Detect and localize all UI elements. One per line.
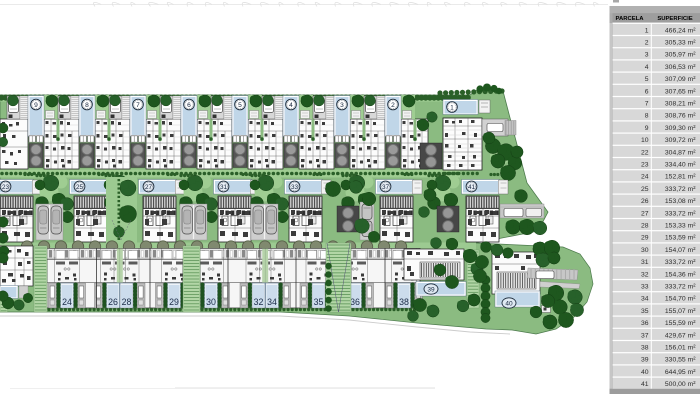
svg-text:27: 27 [145, 184, 153, 191]
svg-text:3: 3 [340, 102, 344, 109]
svg-text:153,59 m²: 153,59 m² [665, 235, 696, 242]
svg-text:35: 35 [314, 297, 324, 307]
svg-text:34: 34 [267, 297, 277, 307]
svg-text:156,01 m²: 156,01 m² [665, 345, 696, 352]
svg-text:34: 34 [641, 296, 649, 303]
svg-text:308,76 m²: 308,76 m² [665, 113, 696, 120]
svg-text:9: 9 [645, 125, 649, 132]
svg-text:32: 32 [254, 297, 264, 307]
svg-text:26: 26 [641, 198, 649, 205]
svg-text:5: 5 [238, 102, 242, 109]
svg-text:31: 31 [220, 184, 228, 191]
svg-text:32: 32 [641, 271, 649, 278]
svg-text:154,36 m²: 154,36 m² [665, 271, 696, 278]
svg-text:1: 1 [645, 27, 649, 34]
svg-text:153,08 m²: 153,08 m² [665, 198, 696, 205]
svg-text:PARCELA: PARCELA [615, 16, 644, 22]
svg-text:23: 23 [2, 184, 10, 191]
svg-text:39: 39 [427, 287, 435, 294]
svg-text:33: 33 [641, 284, 649, 291]
svg-text:22: 22 [641, 149, 649, 156]
svg-text:36: 36 [641, 320, 649, 327]
svg-text:307,65 m²: 307,65 m² [665, 88, 696, 95]
svg-text:26: 26 [108, 297, 118, 307]
svg-text:24: 24 [641, 174, 649, 181]
svg-text:9: 9 [34, 102, 38, 109]
svg-text:153,33 m²: 153,33 m² [665, 223, 696, 230]
svg-text:39: 39 [641, 357, 649, 364]
svg-text:25: 25 [641, 186, 649, 193]
svg-text:305,97 m²: 305,97 m² [665, 52, 696, 59]
svg-text:154,70 m²: 154,70 m² [665, 296, 696, 303]
svg-text:333,72 m²: 333,72 m² [665, 210, 696, 217]
svg-text:333,72 m²: 333,72 m² [665, 186, 696, 193]
svg-text:27: 27 [641, 210, 649, 217]
svg-text:644,95 m²: 644,95 m² [665, 369, 696, 376]
svg-text:24: 24 [62, 297, 72, 307]
svg-text:25: 25 [76, 184, 84, 191]
svg-text:309,72 m²: 309,72 m² [665, 137, 696, 144]
svg-text:28: 28 [641, 223, 649, 230]
svg-text:41: 41 [468, 184, 476, 191]
svg-text:28: 28 [122, 297, 132, 307]
svg-text:305,33 m²: 305,33 m² [665, 40, 696, 47]
svg-text:4: 4 [645, 64, 649, 71]
svg-text:31: 31 [641, 259, 649, 266]
svg-text:330,55 m²: 330,55 m² [665, 357, 696, 364]
svg-text:8: 8 [85, 102, 89, 109]
svg-text:304,87 m²: 304,87 m² [665, 149, 696, 156]
svg-text:333,72 m²: 333,72 m² [665, 284, 696, 291]
svg-text:36: 36 [350, 297, 360, 307]
svg-text:308,21 m²: 308,21 m² [665, 101, 696, 108]
svg-text:155,59 m²: 155,59 m² [665, 320, 696, 327]
svg-text:23: 23 [641, 162, 649, 169]
svg-text:7: 7 [645, 101, 649, 108]
svg-text:37: 37 [382, 184, 390, 191]
svg-text:SUPERFICIE: SUPERFICIE [657, 16, 692, 22]
svg-text:7: 7 [136, 102, 140, 109]
svg-text:5: 5 [645, 76, 649, 83]
svg-text:30: 30 [641, 247, 649, 254]
svg-text:429,67 m²: 429,67 m² [665, 332, 696, 339]
svg-text:306,53 m²: 306,53 m² [665, 64, 696, 71]
svg-text:6: 6 [645, 88, 649, 95]
svg-text:155,07 m²: 155,07 m² [665, 308, 696, 315]
svg-text:309,30 m²: 309,30 m² [665, 125, 696, 132]
svg-text:35: 35 [641, 308, 649, 315]
svg-text:3: 3 [645, 52, 649, 59]
svg-text:33: 33 [291, 184, 299, 191]
svg-text:38: 38 [399, 297, 409, 307]
svg-text:40: 40 [505, 301, 513, 308]
svg-text:333,72 m²: 333,72 m² [665, 259, 696, 266]
svg-text:307,09 m²: 307,09 m² [665, 76, 696, 83]
svg-text:8: 8 [645, 113, 649, 120]
svg-text:154,07 m²: 154,07 m² [665, 247, 696, 254]
svg-text:6: 6 [187, 102, 191, 109]
svg-text:334,40 m²: 334,40 m² [665, 162, 696, 169]
svg-text:1: 1 [450, 105, 454, 112]
svg-text:40: 40 [641, 369, 649, 376]
svg-text:4: 4 [289, 102, 293, 109]
svg-text:10: 10 [641, 137, 649, 144]
svg-text:30: 30 [206, 297, 216, 307]
svg-text:29: 29 [641, 235, 649, 242]
svg-text:152,81 m²: 152,81 m² [665, 174, 696, 181]
svg-text:29: 29 [169, 297, 179, 307]
svg-text:41: 41 [641, 381, 649, 388]
svg-text:37: 37 [641, 332, 649, 339]
svg-text:466,24 m²: 466,24 m² [665, 27, 696, 34]
svg-text:2: 2 [391, 102, 395, 109]
svg-text:38: 38 [641, 345, 649, 352]
svg-text:2: 2 [645, 40, 649, 47]
svg-text:500,00 m²: 500,00 m² [665, 381, 696, 388]
